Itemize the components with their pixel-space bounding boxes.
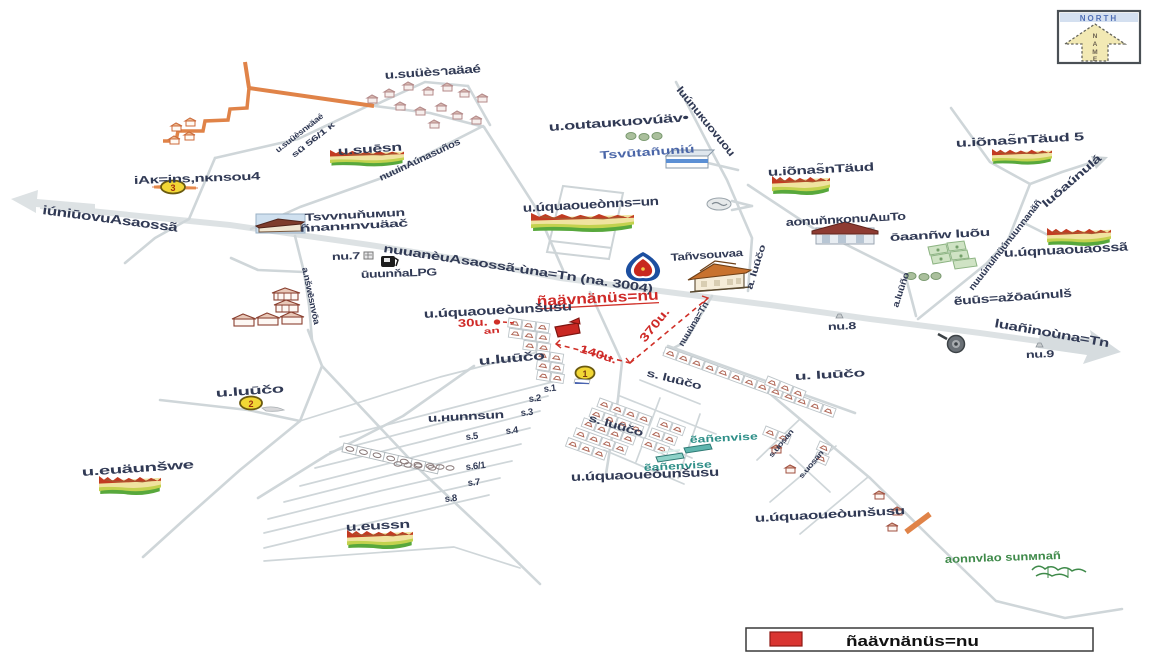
svg-text:NORTH: NORTH [1080, 14, 1118, 23]
svg-text:s.8: s.8 [444, 493, 457, 505]
svg-text:s.6/1: s.6/1 [465, 460, 487, 473]
svg-text:s.7: s.7 [467, 477, 480, 489]
svg-text:1: 1 [582, 369, 587, 379]
svg-text:ñaävnänüs=nu: ñaävnänüs=nu [846, 633, 979, 650]
svg-text:s.5: s.5 [465, 431, 479, 443]
svg-text:nu.7: nu.7 [332, 251, 361, 263]
svg-text:E: E [1093, 56, 1098, 63]
svg-text:s.4: s.4 [505, 425, 519, 437]
svg-text:s.1: s.1 [543, 383, 557, 395]
svg-text:s.3: s.3 [520, 407, 533, 419]
svg-text:nu.8: nu.8 [828, 321, 857, 333]
svg-text:an: an [483, 326, 500, 336]
svg-text:M: M [1092, 49, 1097, 56]
svg-text:A: A [1093, 41, 1098, 48]
svg-text:N: N [1093, 33, 1098, 40]
svg-text:2: 2 [248, 399, 253, 409]
svg-text:nu.9: nu.9 [1026, 349, 1055, 361]
svg-text:s.2: s.2 [528, 393, 541, 405]
